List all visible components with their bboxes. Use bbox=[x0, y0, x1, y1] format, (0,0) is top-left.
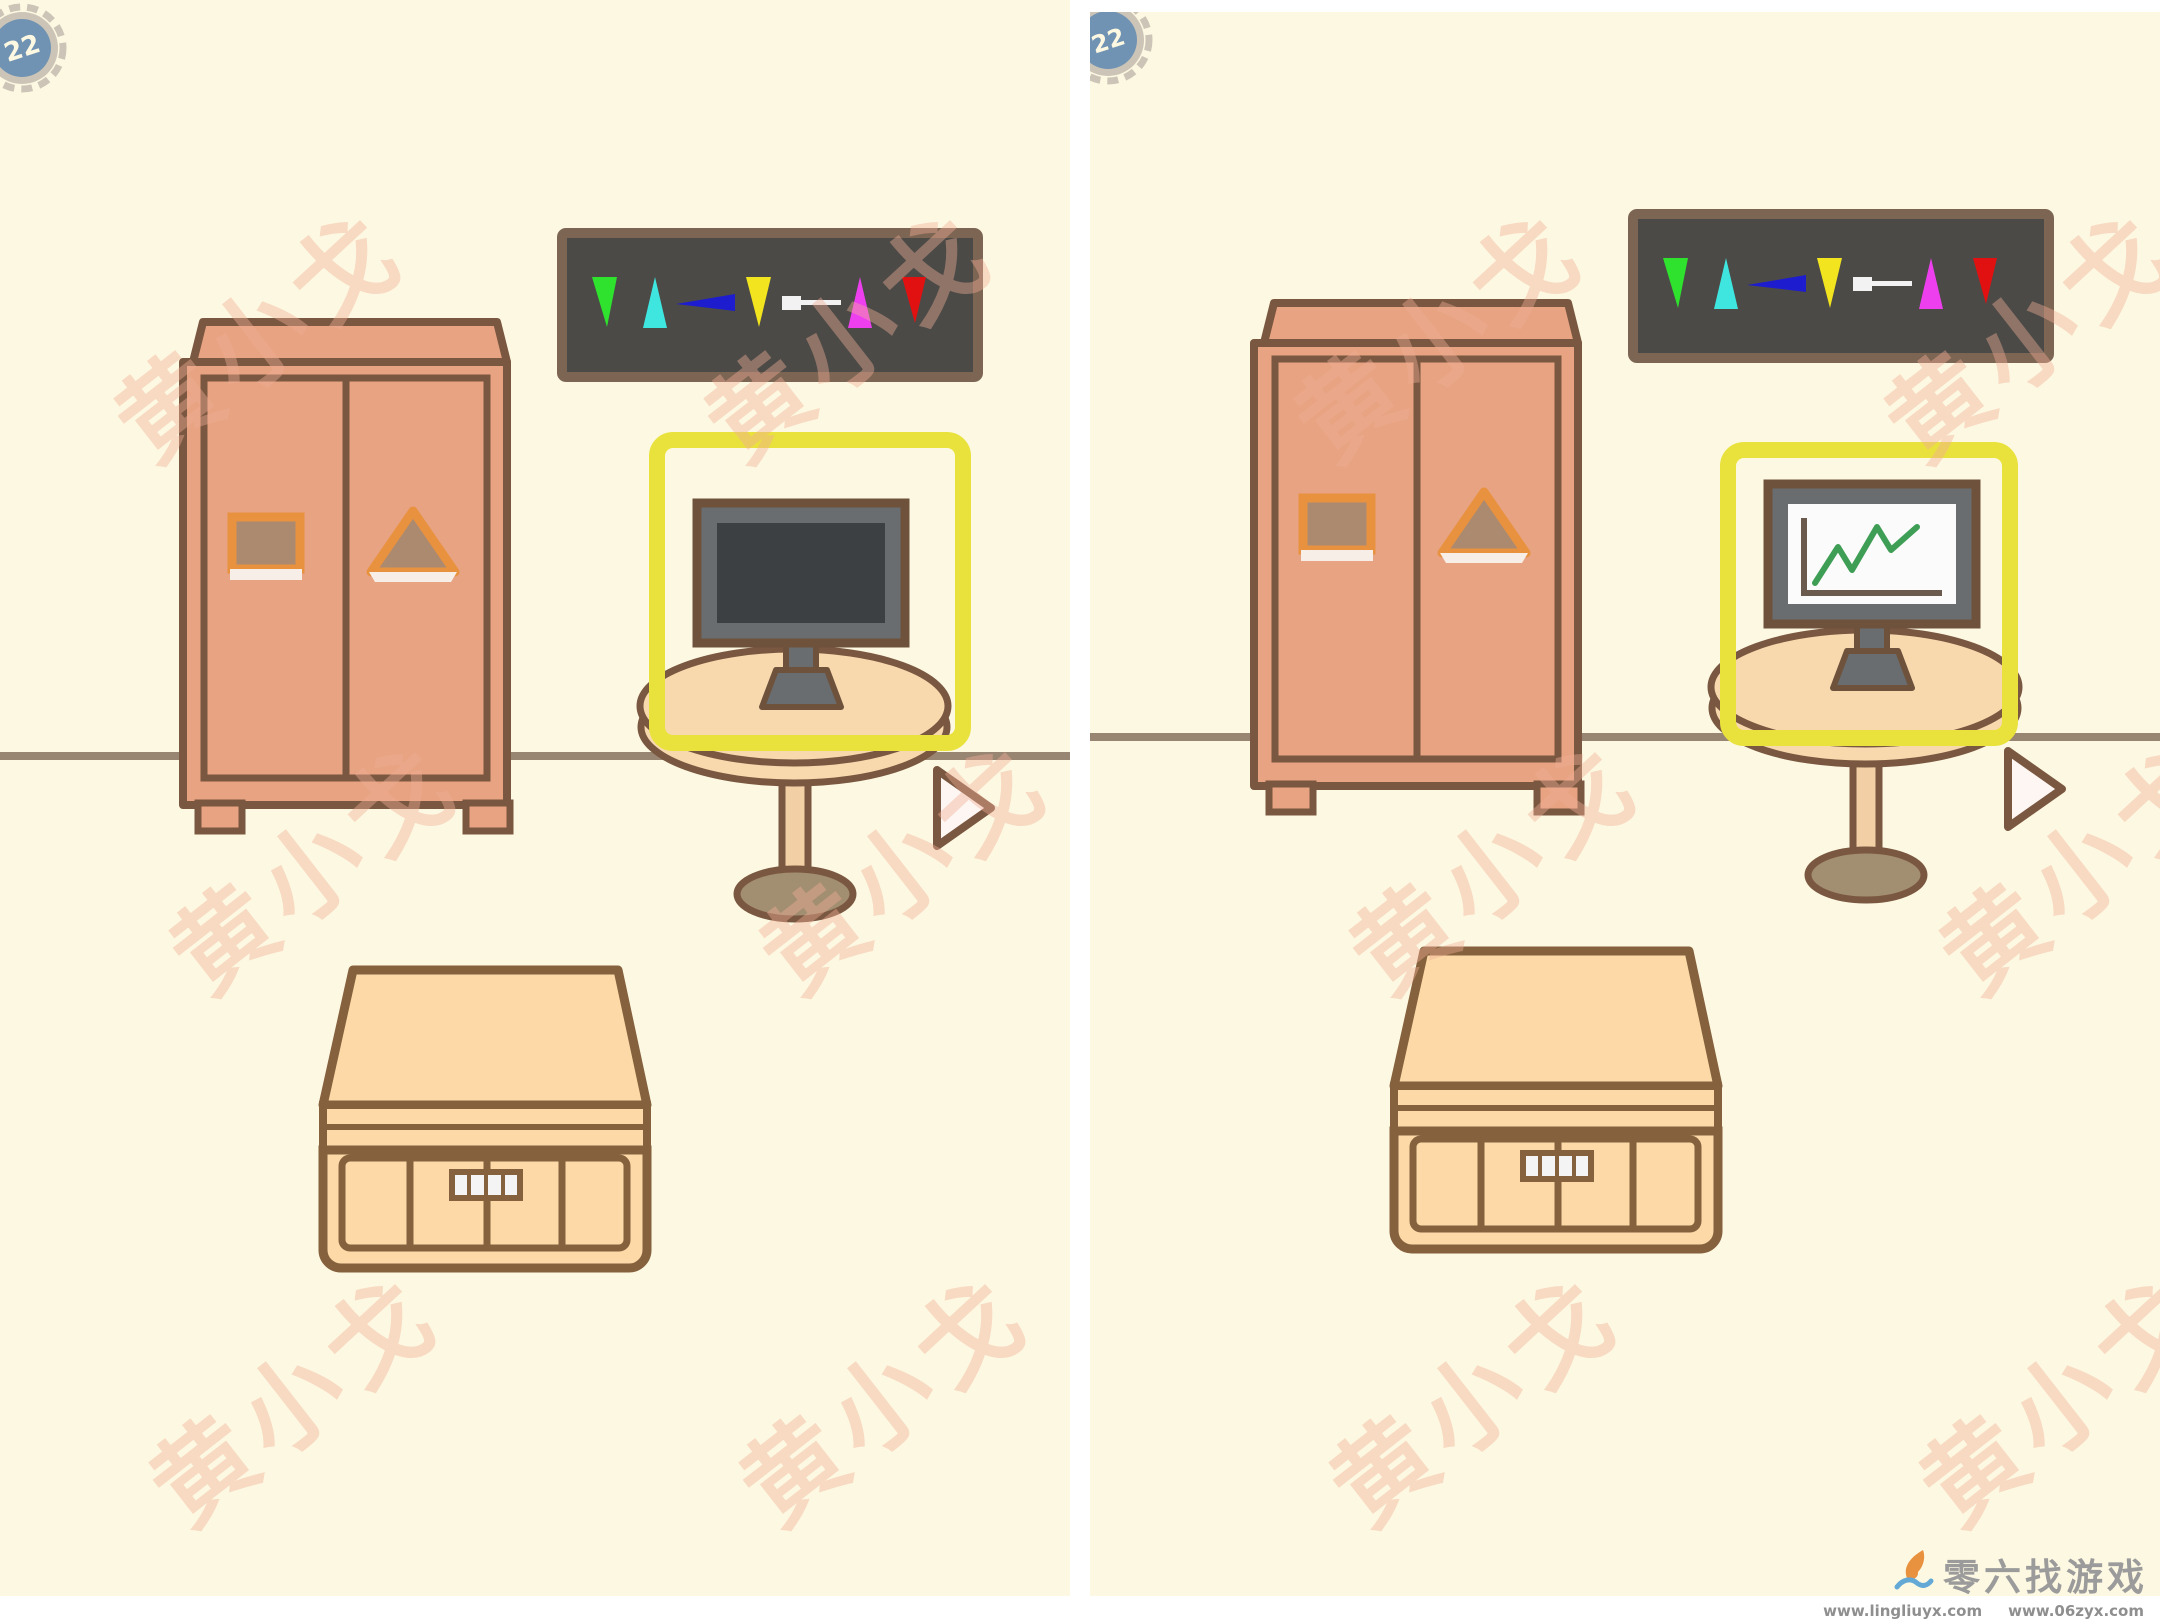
site-logo-text: 零六找游戏 bbox=[1943, 1547, 2148, 1601]
site-url-1: www.lingliuyx.com bbox=[1823, 1602, 1982, 1620]
room-scene-left: 22 bbox=[0, 0, 1070, 1596]
puzzle-panel-right: 22 黄小戈 黄小戈 黄小戈 黄小戈 黄小戈 黄小戈 bbox=[1090, 12, 2160, 1596]
monitor-screen-blank[interactable] bbox=[717, 523, 885, 623]
level-badge: 22 bbox=[1090, 12, 1149, 81]
flame-logo-icon bbox=[1893, 1549, 1935, 1599]
site-url-2: www.06zyx.com bbox=[2008, 1602, 2144, 1620]
room-scene-right: 22 bbox=[1090, 12, 2160, 1596]
puzzle-panel-left: 22 黄小戈 黄小戈 黄小戈 黄小戈 黄小戈 黄小戈 bbox=[0, 0, 1070, 1596]
monitor-screen-chart[interactable] bbox=[1788, 504, 1956, 604]
level-badge: 22 bbox=[0, 7, 63, 89]
site-logo: 零六找游戏 www.lingliuyx.com www.06zyx.com bbox=[1823, 1547, 2148, 1620]
